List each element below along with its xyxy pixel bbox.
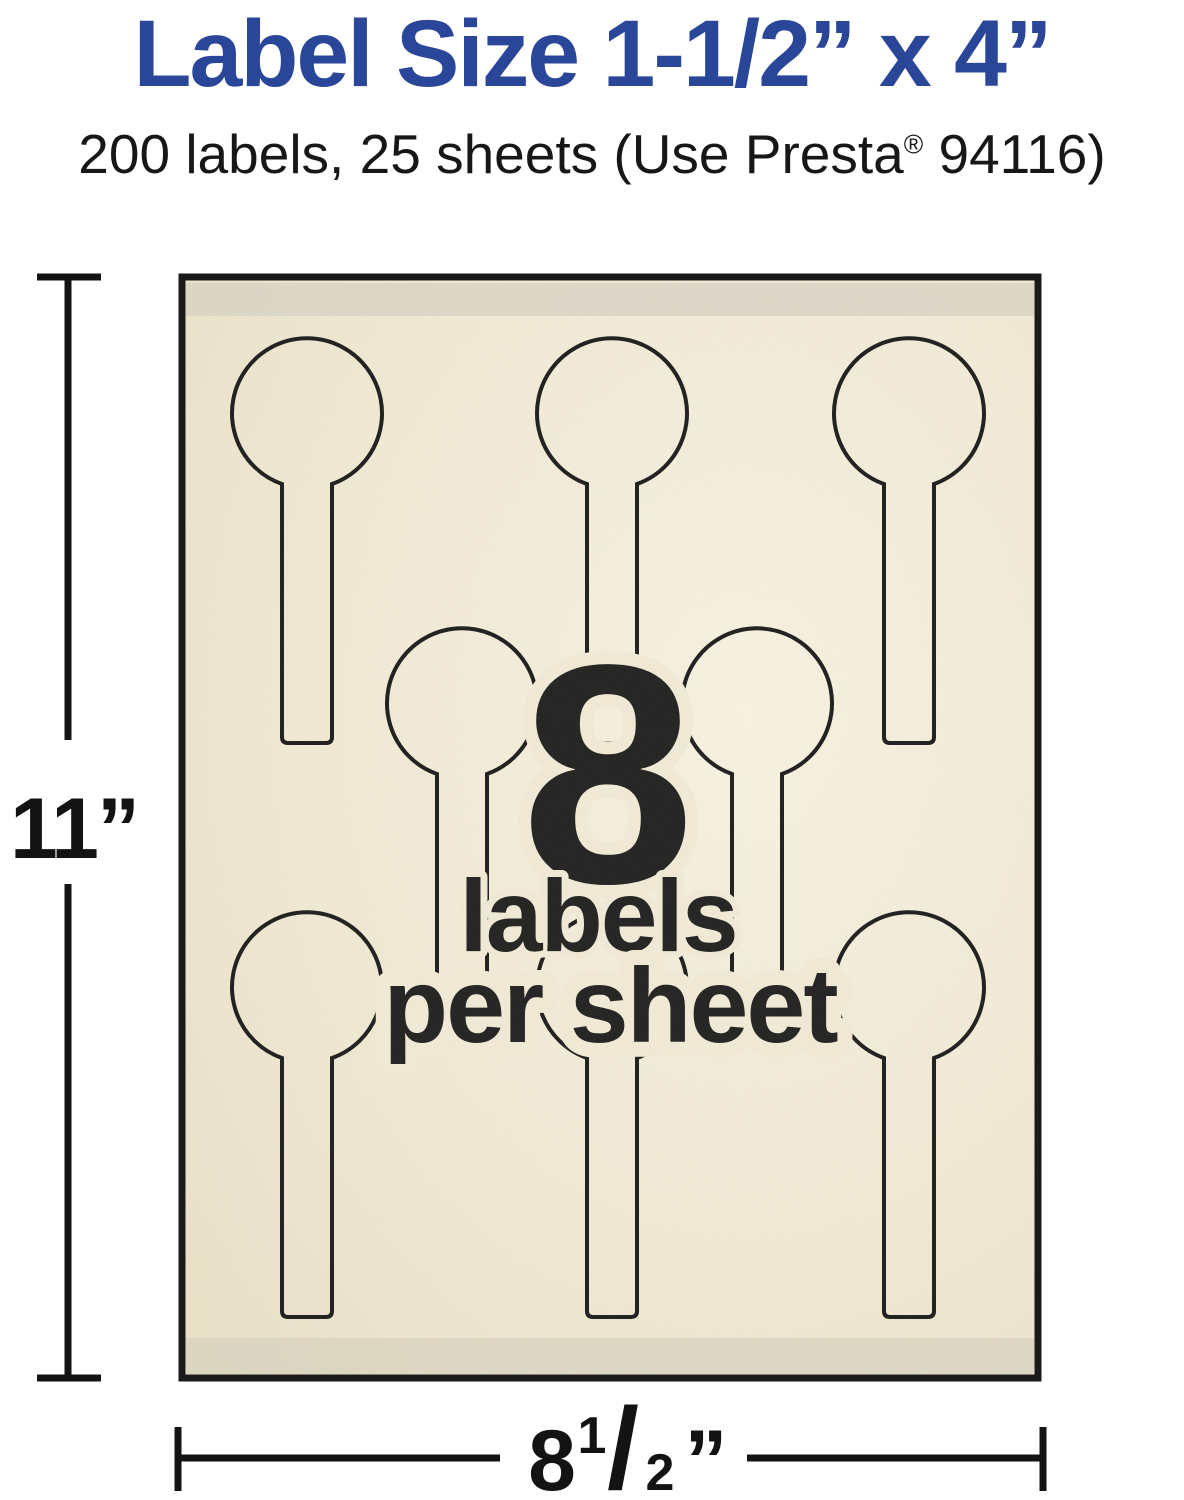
height-dimension-label: 11”: [10, 781, 138, 877]
width-fraction-slash: /: [607, 1385, 639, 1500]
width-fraction-numerator: 1: [578, 1407, 607, 1465]
product-diagram-page: Label Size 1-1/2” x 4” 200 labels, 25 sh…: [0, 0, 1184, 1500]
width-fraction-denominator: 2: [646, 1444, 675, 1500]
paper-texture-overlay: [186, 281, 1034, 1374]
width-whole-number: 8: [528, 1413, 576, 1500]
width-unit-mark: ”: [685, 1413, 728, 1500]
label-sheet-diagram: 8 labels per sheet 11” 8 1 / 2 ”: [0, 0, 1184, 1500]
width-dimension-label: 8 1 / 2 ”: [528, 1385, 727, 1500]
